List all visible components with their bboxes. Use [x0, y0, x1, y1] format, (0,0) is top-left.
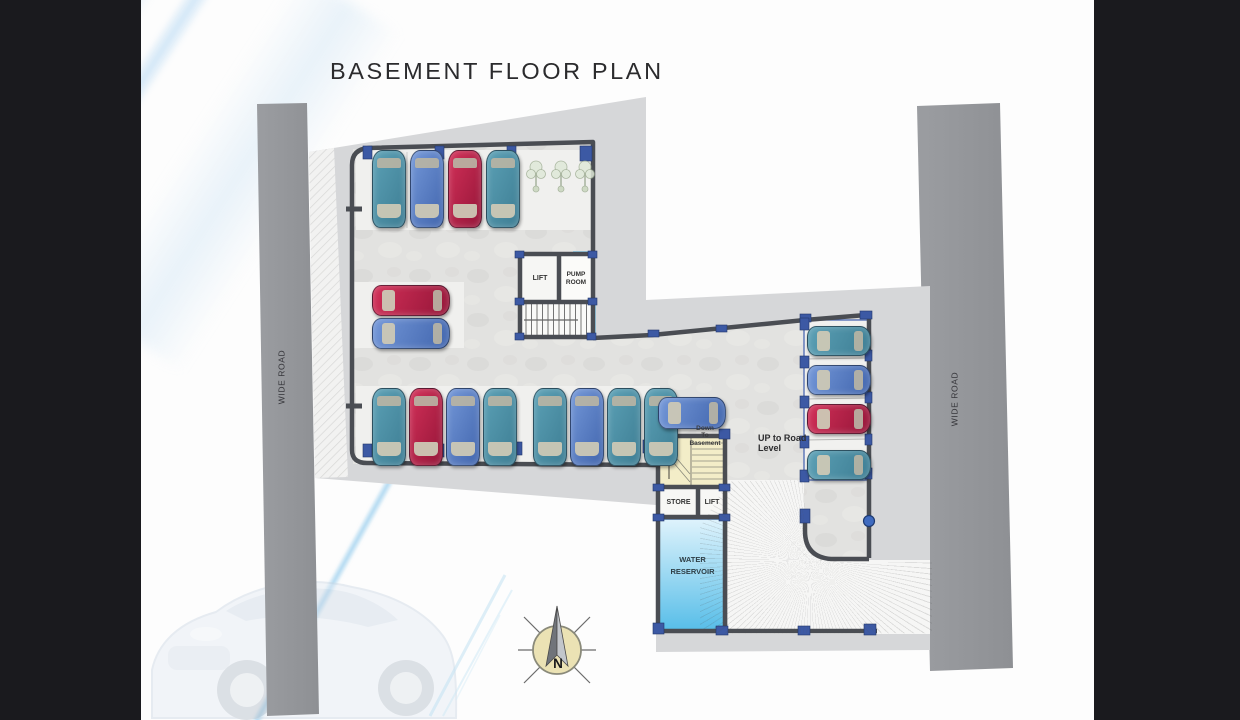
car-blue	[446, 388, 480, 466]
parking-column-right	[807, 326, 871, 480]
car-teal	[372, 150, 406, 228]
water-reservoir-label: WATER RESERVOIR	[659, 520, 726, 612]
wide-road-right-label: WIDE ROAD	[929, 368, 979, 430]
parking-row-bottom	[372, 388, 678, 466]
ghost-car-image	[152, 575, 512, 720]
basement-floor-plan-page: LIFT PUMP ROOM STORE LIFT WATER RESERVOI…	[0, 0, 1240, 720]
car-teal	[607, 388, 641, 466]
parking-stalls-side	[372, 285, 450, 349]
store-label: STORE	[659, 489, 698, 517]
parking-row-top	[372, 150, 520, 228]
car-red	[409, 388, 443, 466]
floor-plan-drawing	[0, 0, 1240, 720]
car-teal	[483, 388, 517, 466]
car-teal	[486, 150, 520, 228]
page-title: BASEMENT FLOOR PLAN	[330, 58, 664, 85]
letterbox-left	[0, 0, 141, 720]
car-teal	[807, 326, 871, 356]
tree-icons	[527, 161, 595, 192]
car-teal	[533, 388, 567, 466]
car-teal	[372, 388, 406, 466]
letterbox-right	[1094, 0, 1240, 720]
down-to-basement-label: Down To Basement	[682, 420, 728, 452]
car-red	[448, 150, 482, 228]
pump-room-label: PUMP ROOM	[559, 256, 593, 302]
car-blue	[570, 388, 604, 466]
car-red	[372, 285, 450, 316]
car-blue	[410, 150, 444, 228]
up-to-road-level-label: UP to Road Level	[758, 430, 822, 456]
wall-knob-column	[864, 516, 875, 527]
lift-lower-label: LIFT	[699, 489, 725, 517]
car-blue	[807, 365, 871, 395]
lift-upper-label: LIFT	[522, 258, 558, 300]
compass-north-label: N	[546, 655, 570, 673]
car-blue	[372, 318, 450, 349]
wide-road-left-label: WIDE ROAD	[256, 346, 306, 408]
road-left	[257, 103, 319, 716]
